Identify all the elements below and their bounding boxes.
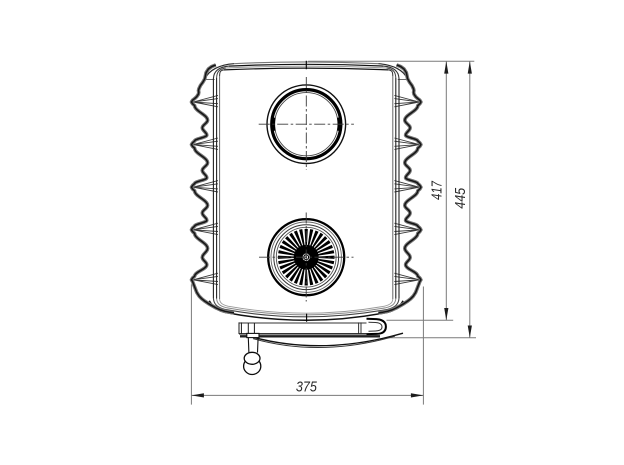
svg-text:417: 417 [429,181,446,200]
svg-text:445: 445 [452,187,469,209]
svg-text:375: 375 [296,378,318,395]
